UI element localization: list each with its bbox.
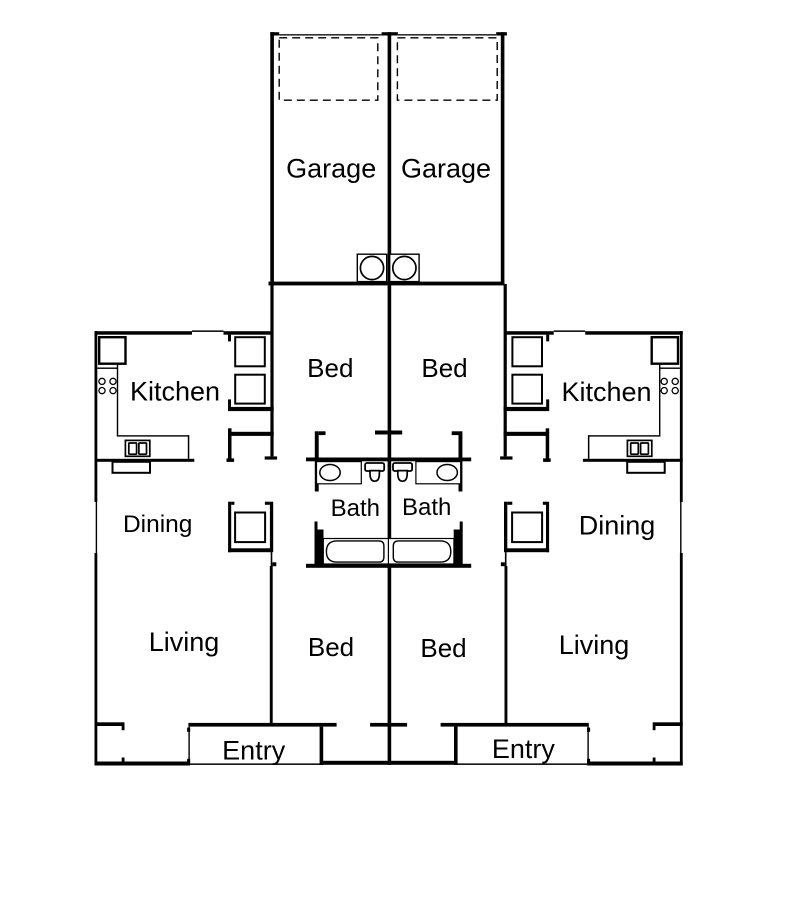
svg-text:Entry: Entry — [222, 736, 286, 766]
svg-text:Garage: Garage — [286, 153, 376, 183]
svg-text:Entry: Entry — [492, 734, 556, 764]
svg-text:Living: Living — [559, 630, 630, 660]
svg-text:Dining: Dining — [123, 511, 192, 538]
svg-text:Garage: Garage — [401, 153, 491, 183]
svg-text:Bed: Bed — [307, 353, 353, 383]
svg-text:Bed: Bed — [420, 633, 466, 663]
svg-text:Living: Living — [149, 627, 220, 657]
svg-text:Bath: Bath — [331, 495, 380, 522]
svg-text:Bed: Bed — [421, 353, 467, 383]
svg-text:Kitchen: Kitchen — [130, 377, 220, 407]
svg-text:Bath: Bath — [402, 494, 451, 521]
svg-text:Bed: Bed — [308, 632, 354, 662]
svg-text:Kitchen: Kitchen — [561, 377, 651, 407]
svg-text:Dining: Dining — [579, 511, 656, 541]
